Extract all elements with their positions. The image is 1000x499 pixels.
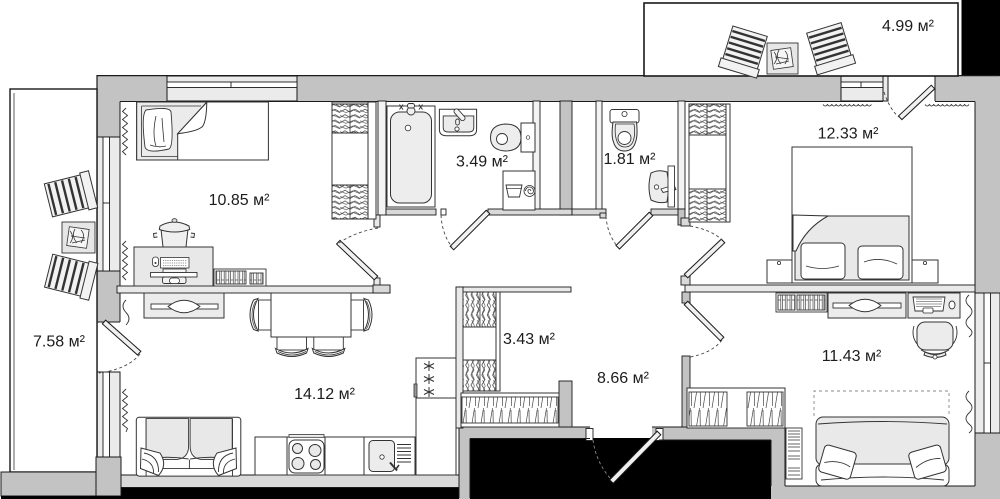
svg-text:11.43 м²: 11.43 м²: [822, 348, 882, 365]
svg-text:10.85 м²: 10.85 м²: [209, 192, 270, 209]
svg-text:7.58 м²: 7.58 м²: [33, 334, 86, 351]
svg-text:3.43 м²: 3.43 м²: [503, 331, 556, 348]
svg-text:3.49 м²: 3.49 м²: [456, 154, 509, 171]
svg-text:12.33 м²: 12.33 м²: [818, 126, 879, 143]
svg-text:1.81 м²: 1.81 м²: [604, 151, 657, 168]
svg-text:8.66 м²: 8.66 м²: [597, 370, 650, 387]
svg-text:14.12 м²: 14.12 м²: [294, 386, 355, 403]
svg-text:4.99 м²: 4.99 м²: [882, 18, 935, 35]
